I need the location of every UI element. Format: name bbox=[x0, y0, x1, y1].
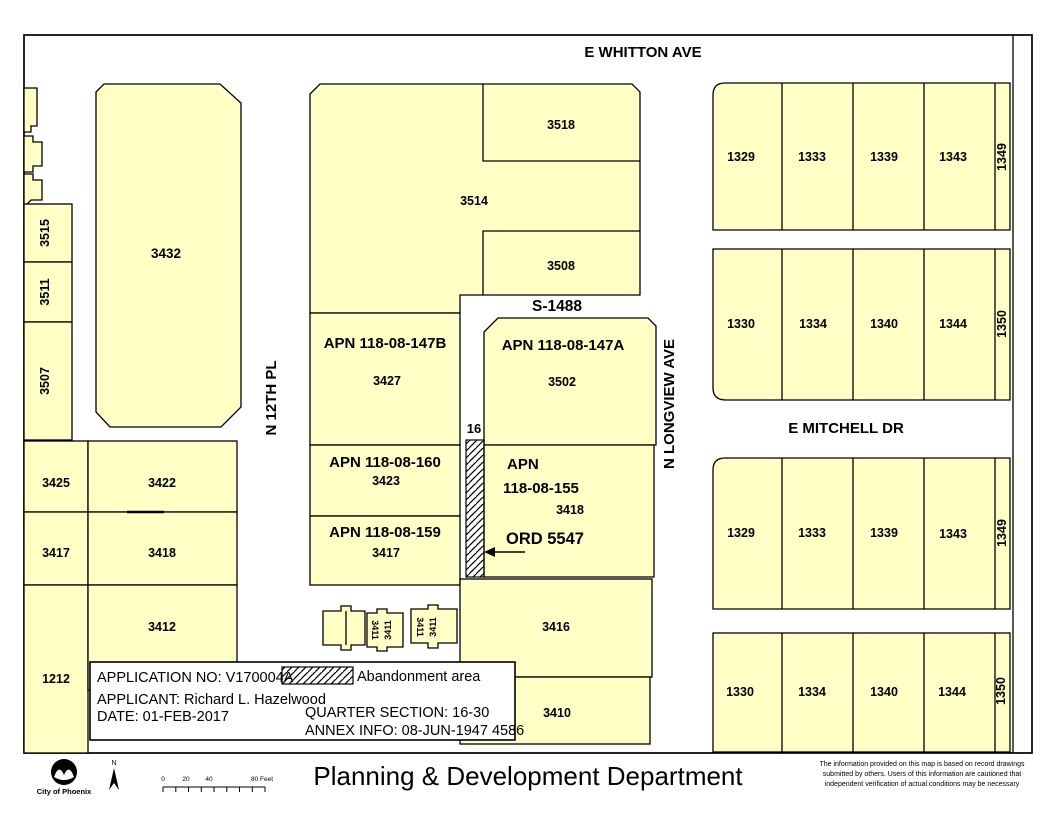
west-edge-parcels bbox=[24, 88, 42, 207]
alley-label-1: 3411 bbox=[370, 620, 380, 640]
parcel-label-3418-west: 3418 bbox=[148, 546, 176, 560]
parcel-label-3514: 3514 bbox=[460, 194, 488, 208]
apn-label-160: APN 118-08-160 bbox=[329, 454, 441, 471]
application-info-box: APPLICATION NO: V170004A APPLICANT: Rich… bbox=[90, 662, 524, 740]
parcel-label-3427: 3427 bbox=[373, 374, 401, 388]
scale-bar-line bbox=[163, 787, 265, 792]
parcel-label-3412: 3412 bbox=[148, 620, 176, 634]
parcel-label: 1330 bbox=[726, 685, 754, 699]
parcel-label: 1350 bbox=[995, 310, 1009, 338]
disclaimer-line-2: submitted by others. Users of this infor… bbox=[823, 771, 1021, 778]
alley-parcels: 3411 3411 3411 3411 bbox=[323, 605, 457, 651]
applicant: APPLICANT: Richard L. Hazelwood bbox=[97, 692, 326, 708]
east-block-3: 1329 1333 1339 1343 1349 bbox=[713, 458, 1010, 609]
parcel-label-3425: 3425 bbox=[42, 476, 70, 490]
scale-tick-20: 20 bbox=[182, 776, 190, 783]
east-block-4: 1330 1334 1340 1344 1350 bbox=[713, 633, 1010, 752]
parcel-label-3502: 3502 bbox=[548, 375, 576, 389]
parcel-label: 1329 bbox=[727, 150, 755, 164]
street-label-12th-pl: N 12TH PL bbox=[263, 360, 280, 435]
parcel-label-3518: 3518 bbox=[547, 118, 575, 132]
footer: City of Phoenix N 0 20 40 80 Feet Planni… bbox=[37, 759, 1025, 796]
quarter-section: QUARTER SECTION: 16-30 bbox=[305, 705, 489, 721]
alley-parcel-1 bbox=[323, 606, 365, 650]
parcel-label: 1343 bbox=[939, 150, 967, 164]
parcel-label-3508: 3508 bbox=[547, 259, 575, 273]
legend-hatch-swatch bbox=[282, 667, 353, 684]
parcel-small-1 bbox=[24, 88, 37, 132]
parcel-label: 1343 bbox=[939, 527, 967, 541]
phoenix-bird-icon bbox=[51, 759, 77, 785]
apn-label-147b: APN 118-08-147B bbox=[324, 335, 447, 352]
alley-label-3: 3411 bbox=[415, 617, 425, 637]
parcel-label: 1329 bbox=[727, 526, 755, 540]
parcel-small-3 bbox=[24, 174, 42, 207]
apn-label-147a: APN 118-08-147A bbox=[502, 337, 625, 354]
apn-label-155-line2: 118-08-155 bbox=[503, 480, 579, 497]
parcel-label-3410: 3410 bbox=[543, 706, 571, 720]
city-logo: City of Phoenix bbox=[37, 759, 92, 796]
apn-label-159: APN 118-08-159 bbox=[329, 524, 441, 541]
street-label-mitchell: E MITCHELL DR bbox=[788, 420, 904, 437]
scale-tick-80: 80 Feet bbox=[251, 776, 273, 783]
label-gap-16: 16 bbox=[467, 421, 481, 436]
parcel-label-3416: 3416 bbox=[542, 620, 570, 634]
parcel-label: 1334 bbox=[798, 685, 826, 699]
logo-caption: City of Phoenix bbox=[37, 787, 92, 796]
central-top-block: 3518 3514 3508 bbox=[310, 84, 640, 313]
parcel-label-3432: 3432 bbox=[151, 246, 181, 261]
label-ord-5547: ORD 5547 bbox=[506, 530, 584, 548]
parcel-label: 1334 bbox=[799, 317, 827, 331]
parcel-label-3417-west: 3417 bbox=[42, 546, 70, 560]
north-label: N bbox=[111, 760, 116, 767]
disclaimer-line-3: independent verification of actual condi… bbox=[825, 781, 1020, 788]
alley-label-4: 3411 bbox=[428, 617, 438, 637]
parcel-label-3417-central: 3417 bbox=[372, 546, 400, 560]
parcel-label-3423: 3423 bbox=[372, 474, 400, 488]
parcel-label-3515: 3515 bbox=[38, 219, 52, 247]
parcel-label: 1344 bbox=[939, 317, 967, 331]
quarter-section-map-page: E WHITTON AVE N 12TH PL N LONGVIEW AVE E… bbox=[0, 0, 1056, 816]
disclaimer: The information provided on this map is … bbox=[819, 761, 1025, 788]
parcel-label: 1333 bbox=[798, 150, 826, 164]
label-s1488: S-1488 bbox=[532, 298, 582, 315]
parcel-label: 1349 bbox=[995, 143, 1009, 171]
annex-info: ANNEX INFO: 08-JUN-1947 4586 bbox=[305, 723, 524, 739]
parcel-small-2 bbox=[24, 136, 42, 172]
north-arrow: N bbox=[109, 760, 119, 790]
department-title: Planning & Development Department bbox=[313, 761, 743, 791]
parcel-label-3511: 3511 bbox=[38, 278, 52, 305]
disclaimer-line-1: The information provided on this map is … bbox=[819, 761, 1025, 768]
parcel-label: 1350 bbox=[994, 677, 1008, 705]
application-date: DATE: 01-FEB-2017 bbox=[97, 709, 229, 725]
west-column: 3515 3511 3507 3432 bbox=[24, 84, 241, 440]
apn-label-155-line1: APN bbox=[507, 456, 539, 473]
parcel-label: 1333 bbox=[798, 526, 826, 540]
street-label-whitton: E WHITTON AVE bbox=[584, 44, 701, 61]
parcel-label-3422: 3422 bbox=[148, 476, 176, 490]
application-no: APPLICATION NO: V170004A bbox=[97, 670, 294, 686]
scale-bar: 0 20 40 80 Feet bbox=[161, 776, 273, 792]
parcel-label: 1340 bbox=[870, 317, 898, 331]
parcel-label: 1330 bbox=[727, 317, 755, 331]
scale-tick-40: 40 bbox=[205, 776, 213, 783]
parcel-label: 1339 bbox=[870, 526, 898, 540]
parcel-label-3418-central: 3418 bbox=[556, 503, 584, 517]
abandonment-hatch-strip bbox=[466, 440, 484, 577]
alley-label-2: 3411 bbox=[383, 620, 393, 640]
parcel-label-1212: 1212 bbox=[42, 672, 70, 686]
parcel-label: 1340 bbox=[870, 685, 898, 699]
parcel-label: 1344 bbox=[938, 685, 966, 699]
scale-tick-0: 0 bbox=[161, 776, 165, 783]
east-block-1: 1329 1333 1339 1343 1349 bbox=[713, 83, 1010, 230]
plat-map: E WHITTON AVE N 12TH PL N LONGVIEW AVE E… bbox=[0, 0, 1056, 816]
street-label-longview: N LONGVIEW AVE bbox=[661, 339, 678, 469]
parcel-label: 1339 bbox=[870, 150, 898, 164]
parcel-1212 bbox=[24, 585, 88, 753]
legend-label: Abandonment area bbox=[357, 669, 481, 685]
east-block-2: 1330 1334 1340 1344 1350 bbox=[713, 249, 1010, 400]
north-arrow-icon bbox=[109, 768, 119, 790]
parcel-label-3507: 3507 bbox=[38, 367, 52, 395]
parcel-label: 1349 bbox=[995, 519, 1009, 547]
